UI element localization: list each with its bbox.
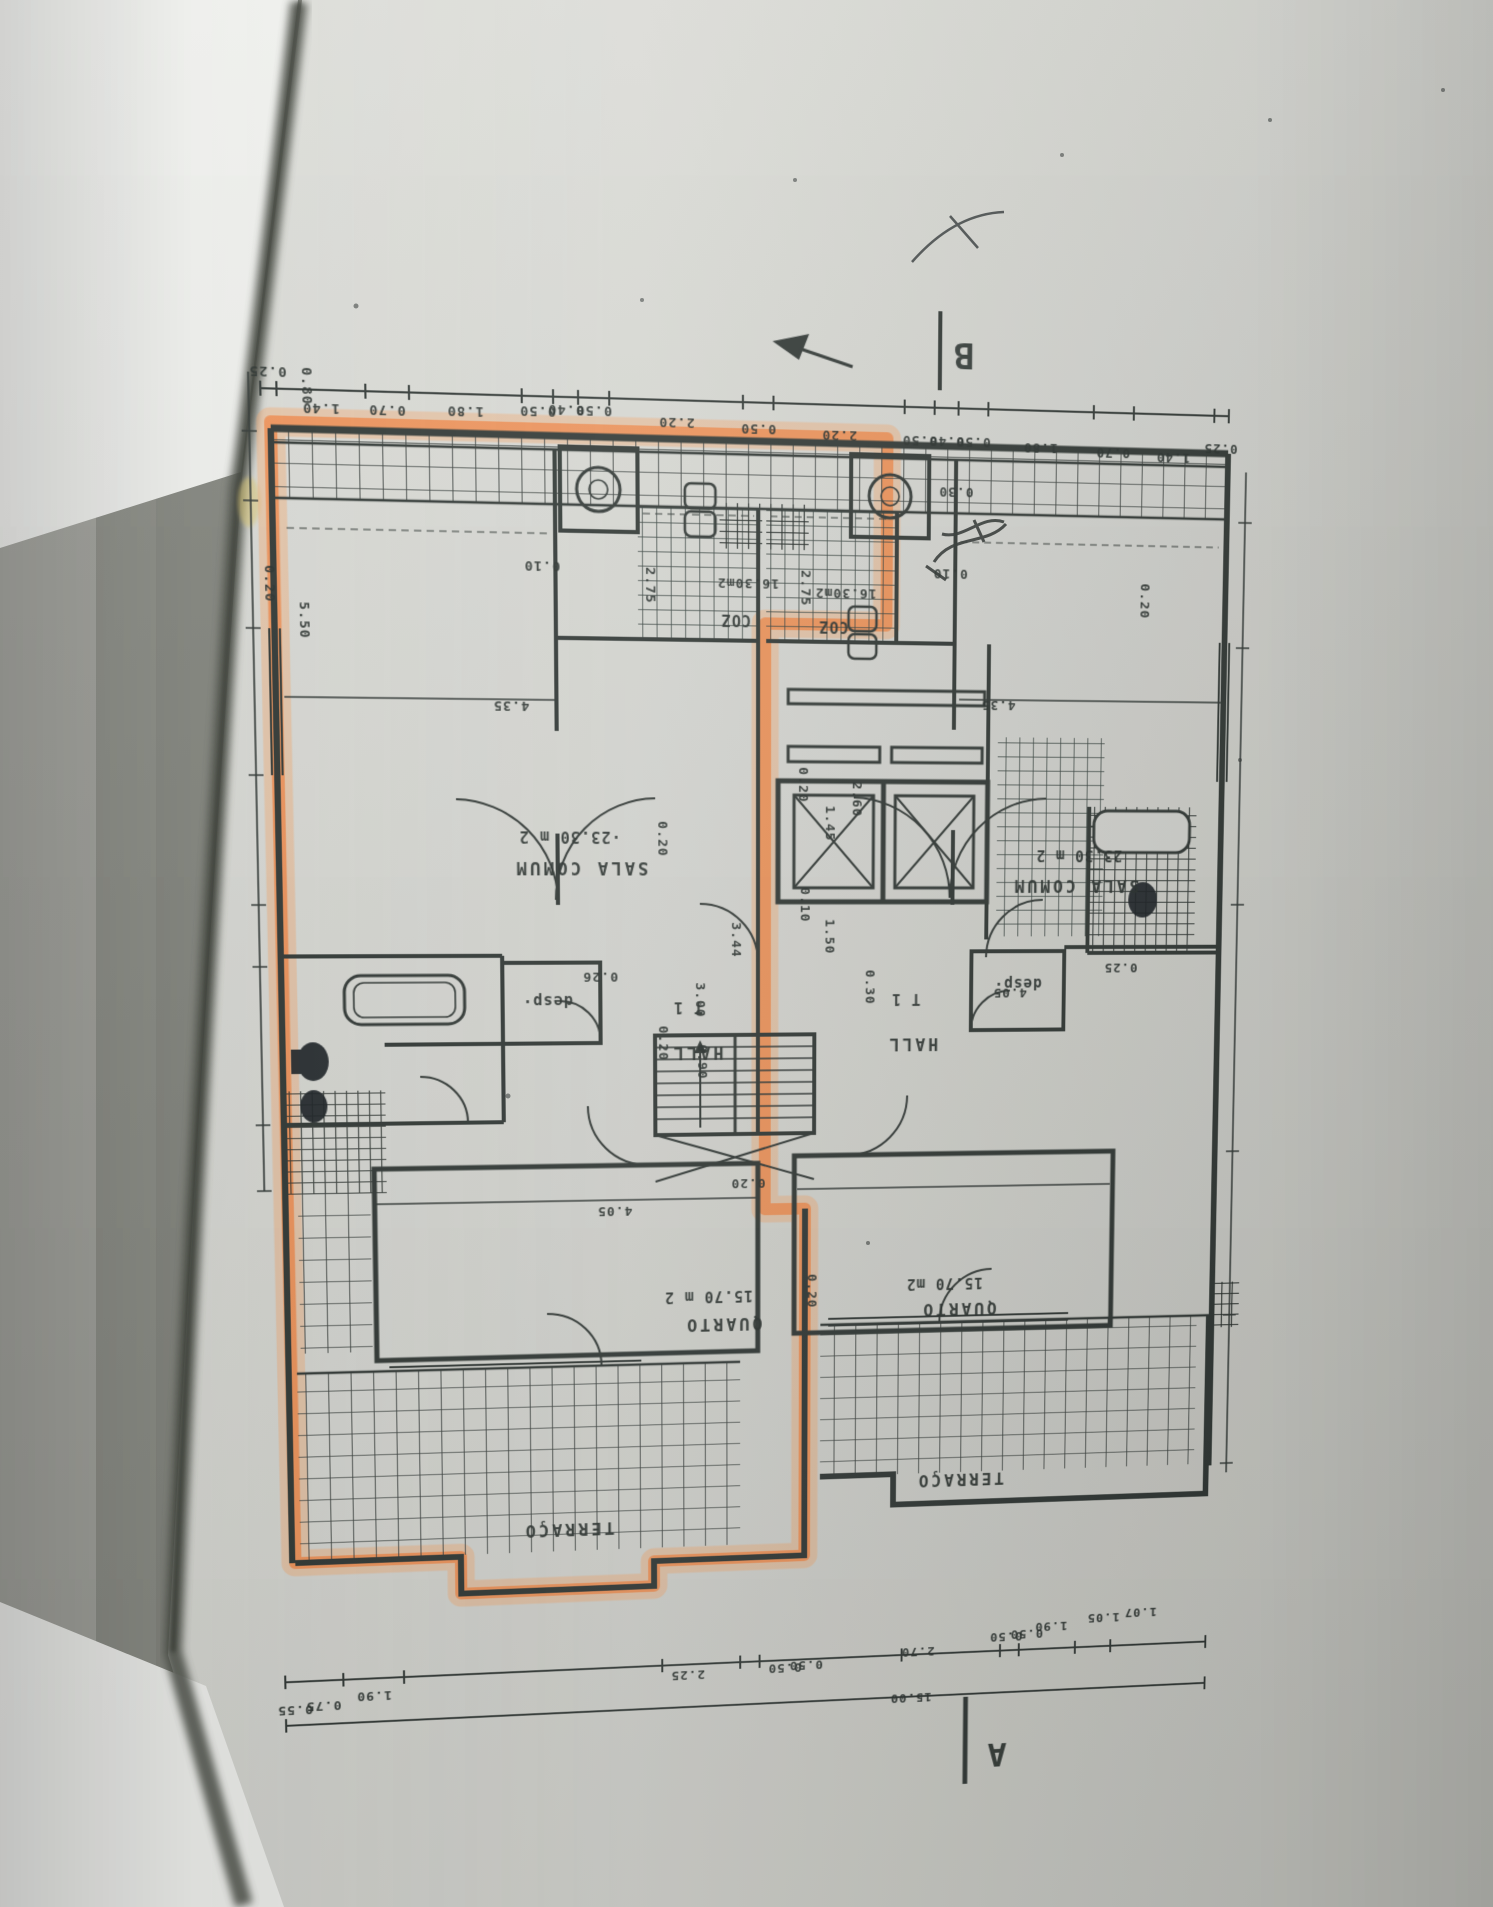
room-label-pantry-left: desp· <box>522 992 573 1010</box>
dim-side: 0.20 <box>654 821 670 857</box>
dim-top: 0.70 <box>1095 444 1130 461</box>
unit-type-right: T 1 <box>891 990 921 1007</box>
dim-side: 2.75 <box>642 567 658 604</box>
dim-side: 1.50 <box>822 919 837 954</box>
room-area-bedroom-right: 15.70 m2 <box>906 1274 983 1292</box>
dim-side: 4.05 <box>597 1203 632 1219</box>
door-arc-bath-left <box>420 1076 468 1123</box>
planter-strip-left <box>298 1192 373 1353</box>
dim-top: 1.40 <box>1156 449 1190 466</box>
dim-top: 0.50 <box>575 402 612 419</box>
dim-top: 2.20 <box>821 426 857 443</box>
dim-side: 0.30 <box>862 970 877 1005</box>
dim-bottom: 1.07 <box>1124 1604 1157 1620</box>
dim-side: 3.00 <box>692 983 707 1018</box>
room-label-sala-left: SALA COMUM <box>513 857 648 877</box>
dim-top: 1.80 <box>446 402 483 419</box>
dim-side: 0.25 <box>1104 960 1138 975</box>
dim-bottom: 1.90 <box>356 1687 392 1703</box>
room-label-terrace-right: TERRAÇO <box>916 1468 1004 1489</box>
room-label-hall-right: HALL <box>887 1034 939 1053</box>
room-area-sala-left: ·23.30 m 2 <box>518 827 621 845</box>
dim-top: 0.50 <box>956 433 991 450</box>
floor-plan-drawing: B A ·23.30 m 2 SALA COMUM 16.30m2 COZ HA… <box>0 0 1488 1907</box>
dim-side: 5.50 <box>296 602 313 639</box>
section-mark-a: A <box>987 1735 1007 1772</box>
dim-side: 2.75 <box>798 570 814 607</box>
dim-side: 0.80 <box>298 367 315 405</box>
dim-side: 0.20 <box>804 1274 819 1309</box>
room-label-kitchen-right: COZ <box>818 617 848 635</box>
room-label-bedroom-left: QUARTO <box>684 1313 762 1334</box>
dim-side: 0.90 <box>694 1044 709 1079</box>
edge-box-right <box>1214 1281 1239 1327</box>
dim-side: 4.35 <box>493 697 530 713</box>
floor-plan-photo: B A ·23.30 m 2 SALA COMUM 16.30m2 COZ HA… <box>0 0 1493 1907</box>
bath-floor-left <box>283 1090 386 1194</box>
dim-bottom: 2.70 <box>901 1643 935 1659</box>
room-area-bedroom-left: 15.70 m 2 <box>664 1287 753 1306</box>
dim-side: 3.44 <box>728 922 743 957</box>
dim-side: 2.60 <box>849 782 864 818</box>
dim-side: 0.10 <box>797 887 812 922</box>
section-mark-b: B <box>954 334 975 376</box>
dim-side: 0.20 <box>1137 584 1152 620</box>
dim-bottom: 2.25 <box>670 1667 704 1683</box>
dim-side: 0.30 <box>938 483 973 500</box>
dim-side: 0.20 <box>655 1026 671 1061</box>
bathtub-right <box>1094 811 1190 853</box>
dim-total-length: 15.00 <box>890 1689 932 1705</box>
dim-bottom: 1.05 <box>1087 1609 1120 1625</box>
room-area-kitchen-right: 16.30m2 <box>815 584 877 601</box>
dim-bottom: 0.75 <box>305 1697 341 1713</box>
room-label-sala-right: SALA COMUM <box>1012 875 1140 894</box>
room-label-kitchen-left: COZ <box>721 611 751 629</box>
dim-side: 0.20 <box>261 565 278 603</box>
dim-top: 0.50 <box>740 420 776 437</box>
terrace-tiles-left <box>297 1362 740 1561</box>
dim-top: 2.20 <box>658 414 694 431</box>
dim-side: 4.05 <box>993 985 1027 1000</box>
dim-side: 0.20 <box>731 1175 766 1191</box>
room-label-terrace-left: TERRAÇO <box>523 1518 615 1540</box>
dim-top: 1.80 <box>1023 439 1058 456</box>
dim-side: 0.20 <box>795 767 810 803</box>
terrace-tiles-right <box>820 1316 1197 1477</box>
dim-bottom: 1.90 <box>1034 1618 1067 1634</box>
dim-top: 0.70 <box>368 401 406 418</box>
room-area-sala-right: 23.30 m 2 <box>1035 846 1122 863</box>
dim-side: 1.45 <box>822 806 837 842</box>
dim-bottom: 0.50 <box>789 1657 823 1673</box>
dim-top: 0.25 <box>1203 440 1237 457</box>
room-area-kitchen-left: 16.30m2 <box>717 574 780 591</box>
dim-side: 0.10 <box>933 565 968 581</box>
dim-side: 4.35 <box>981 697 1016 713</box>
dim-top: 0.25 <box>248 362 286 380</box>
dim-side: 0.26 <box>582 969 618 985</box>
room-label-bedroom-right: QUARTO <box>920 1298 996 1318</box>
direction-arrow <box>773 333 810 360</box>
dim-side: 0.10 <box>524 557 561 574</box>
